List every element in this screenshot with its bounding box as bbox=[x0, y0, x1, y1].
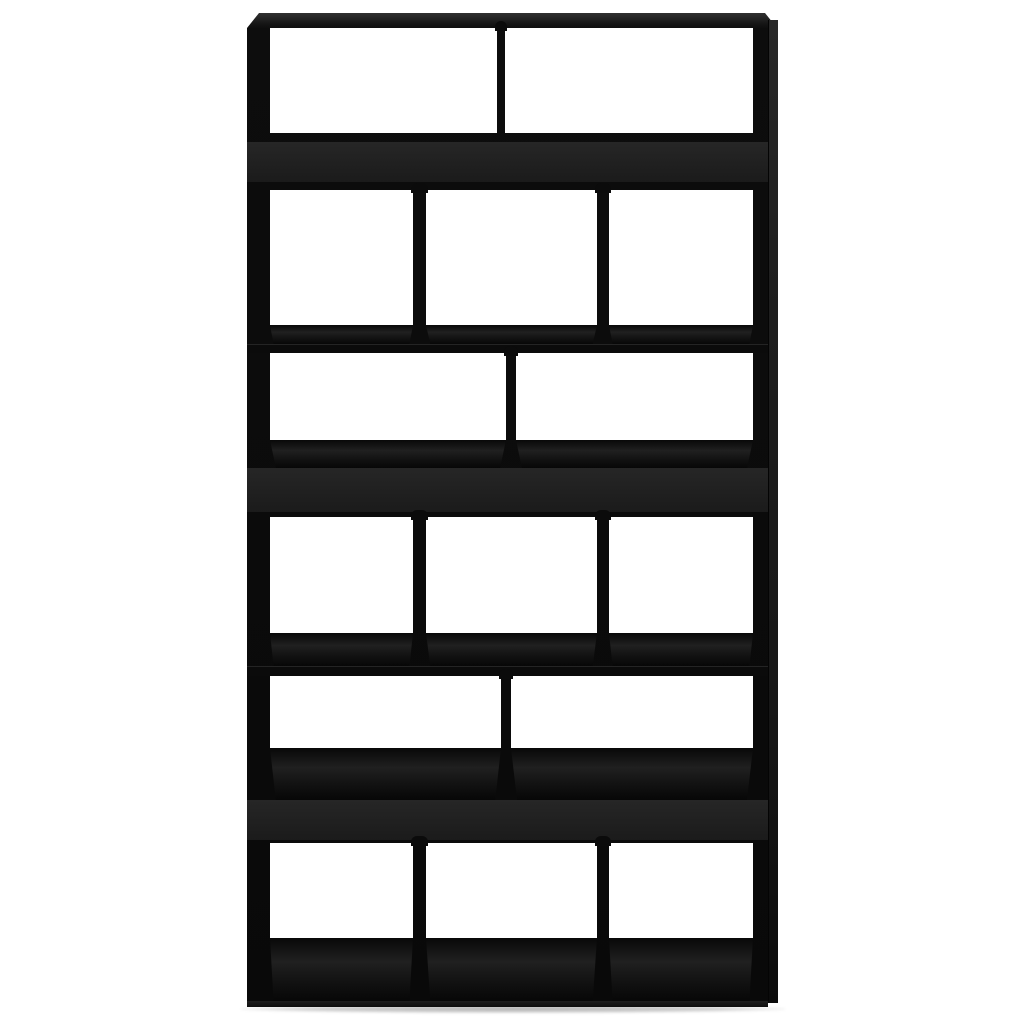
compartment-opening bbox=[609, 517, 753, 633]
compartment-interior bbox=[609, 325, 753, 344]
compartment-interior bbox=[609, 633, 753, 666]
open-row-2 bbox=[247, 190, 768, 325]
divider-tab bbox=[504, 346, 518, 356]
panel-front bbox=[247, 468, 768, 512]
compartment-interior bbox=[270, 748, 501, 800]
divider-tab bbox=[411, 510, 428, 520]
compartment-opening bbox=[426, 190, 597, 325]
base-front bbox=[247, 1001, 768, 1007]
bookcase bbox=[247, 28, 768, 1007]
compartment-opening bbox=[270, 517, 413, 633]
compartment-opening bbox=[270, 843, 413, 938]
compartment-opening bbox=[270, 28, 497, 133]
compartment-interior bbox=[609, 938, 753, 1001]
compartment-interior bbox=[426, 938, 597, 1001]
bookcase-right-side-panel bbox=[768, 20, 778, 1003]
compartment-interior bbox=[270, 633, 413, 666]
compartment-interior bbox=[516, 440, 753, 468]
product-photo bbox=[0, 0, 1024, 1024]
panel-front bbox=[247, 800, 768, 840]
compartment-interior bbox=[426, 325, 597, 344]
compartment-opening bbox=[426, 843, 597, 938]
compartment-opening bbox=[609, 190, 753, 325]
divider-tab bbox=[595, 510, 611, 520]
open-row-5 bbox=[247, 676, 768, 748]
compartment-interior bbox=[270, 938, 413, 1001]
divider-tab bbox=[595, 183, 611, 193]
compartment-interior bbox=[511, 748, 753, 800]
compartment-interior bbox=[426, 633, 597, 666]
compartment-interior bbox=[270, 440, 506, 468]
open-row-6 bbox=[247, 843, 768, 938]
front-panel-3 bbox=[247, 748, 768, 843]
bookcase-top-board bbox=[247, 13, 777, 28]
compartment-opening bbox=[609, 843, 753, 938]
front-panel-1 bbox=[247, 133, 768, 190]
front-panel-2 bbox=[247, 440, 768, 517]
divider-tab bbox=[499, 669, 513, 679]
panel-front bbox=[247, 142, 768, 182]
compartment-opening bbox=[270, 190, 413, 325]
base-strip bbox=[247, 1001, 768, 1007]
divider-tab bbox=[595, 836, 611, 846]
open-row-4 bbox=[247, 517, 768, 633]
compartment-opening bbox=[516, 353, 753, 440]
compartment-interior bbox=[270, 325, 413, 344]
compartment-opening bbox=[426, 517, 597, 633]
divider-tab bbox=[495, 21, 507, 31]
open-row-1 bbox=[247, 28, 768, 133]
open-row-3 bbox=[247, 353, 768, 440]
compartment-opening bbox=[505, 28, 753, 133]
compartment-opening bbox=[270, 353, 506, 440]
divider-tab bbox=[411, 183, 428, 193]
divider-tab bbox=[411, 836, 428, 846]
compartment-opening bbox=[511, 676, 753, 748]
compartment-opening bbox=[270, 676, 501, 748]
bottom-interior bbox=[247, 938, 768, 1001]
